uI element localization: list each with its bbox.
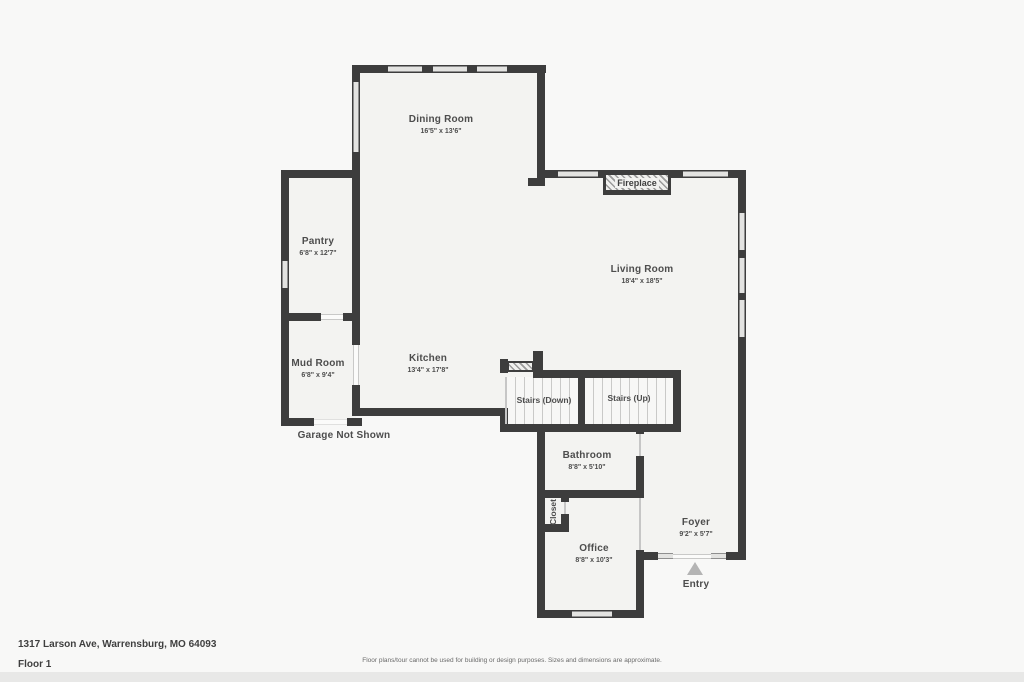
entry-door-opening: [673, 554, 711, 559]
window: [558, 171, 598, 177]
room-label-bathroom: Bathroom 8'8" x 5'10": [563, 450, 612, 471]
wall: [343, 313, 360, 321]
wall: [636, 456, 644, 498]
property-address: 1317 Larson Ave, Warrensburg, MO 64093: [18, 639, 216, 650]
wall: [528, 178, 545, 186]
room-label-stairs-up: Stairs (Up): [608, 393, 651, 403]
window-mullion: [738, 293, 746, 300]
wall: [636, 550, 644, 618]
window: [353, 82, 359, 152]
fireplace-label: Fireplace: [615, 178, 659, 188]
door-opening: [564, 502, 566, 514]
wall: [500, 424, 681, 432]
wall: [352, 408, 508, 416]
stair-railing: [507, 361, 534, 372]
wall: [281, 170, 289, 426]
wall: [533, 351, 543, 378]
wall: [636, 426, 644, 434]
wall: [281, 418, 314, 426]
room-label-pantry: Pantry 6'8" x 12'7": [299, 236, 336, 257]
room-label-dining: Dining Room 16'5" x 13'6": [409, 114, 473, 135]
wall: [636, 552, 658, 560]
room-label-office: Office 8'8" x 10'3": [575, 543, 612, 564]
window-mullion: [422, 65, 433, 73]
floor-number-label: Floor 1: [18, 659, 51, 670]
window: [282, 261, 288, 288]
door-opening: [353, 345, 359, 385]
floor-fill: [289, 176, 356, 420]
footer-divider-band: [0, 672, 1024, 682]
door-opening: [639, 434, 641, 456]
wall: [537, 65, 545, 185]
garage-door-opening: [314, 419, 347, 425]
wall: [536, 370, 681, 378]
room-label-living: Living Room 18'4" x 18'5": [611, 264, 674, 285]
room-label-closet: Closet: [548, 499, 558, 525]
window: [711, 553, 726, 559]
wall: [537, 524, 569, 532]
room-label-stairs-down: Stairs (Down): [517, 395, 572, 405]
door-opening: [321, 314, 343, 320]
window: [572, 611, 612, 617]
wall: [537, 426, 545, 618]
room-label-mudroom: Mud Room 6'8" x 9'4": [291, 358, 344, 379]
fireplace: Fireplace: [603, 172, 671, 195]
wall: [578, 372, 585, 428]
window: [739, 213, 745, 337]
window-mullion: [467, 65, 477, 73]
window: [658, 553, 673, 559]
wall: [726, 552, 746, 560]
stair-open-edge: [505, 377, 507, 424]
wall: [347, 418, 362, 426]
window: [683, 171, 728, 177]
door-opening: [639, 498, 641, 550]
window-mullion: [738, 250, 746, 258]
wall: [281, 313, 321, 321]
wall: [281, 170, 360, 178]
room-label-kitchen: Kitchen 13'4" x 17'8": [407, 353, 448, 374]
floor-plan-canvas: Fireplace Dining Room 16'5" x 13'6" Pant…: [0, 0, 1024, 682]
wall: [673, 370, 681, 432]
window: [388, 66, 507, 72]
entry-label: Entry: [683, 579, 710, 590]
entry-arrow-icon: [687, 562, 703, 575]
room-label-foyer: Foyer 9'2" x 5'7": [679, 517, 712, 538]
disclaimer-text: Floor plans/tour cannot be used for buil…: [362, 657, 662, 664]
wall: [561, 490, 569, 502]
garage-note: Garage Not Shown: [298, 430, 391, 441]
wall: [537, 490, 644, 498]
